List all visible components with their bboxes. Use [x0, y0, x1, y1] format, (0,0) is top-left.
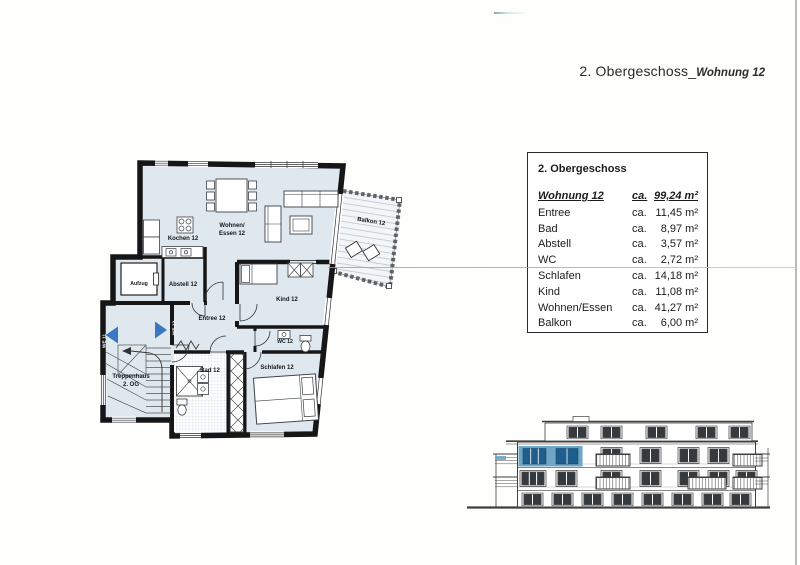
- row-label: Balkon: [538, 316, 632, 332]
- elevation-highlight: [519, 446, 583, 467]
- row-amount: 14,18 m²: [647, 269, 698, 285]
- room-label-bad: Bad 12: [200, 368, 220, 374]
- row-label: Schlafen: [538, 269, 632, 285]
- row-label: Kind: [538, 285, 632, 301]
- row-label: Abstell: [538, 237, 632, 253]
- area-table-title: 2. Obergeschoss: [538, 163, 698, 175]
- room-label-treppenhaus-1: Treppenhaus: [112, 374, 150, 380]
- elevation-drawing: [467, 417, 770, 508]
- room-label-wohnen-1: Wohnen/: [219, 223, 245, 229]
- row-amount: 8,97 m²: [647, 222, 698, 238]
- installation-shaft: [230, 354, 244, 432]
- row-label: Wohnen/Essen: [538, 301, 632, 317]
- room-label-wohnen-2: Essen 12: [219, 231, 246, 237]
- row-amount: 3,57 m²: [647, 237, 698, 253]
- area-table: 2. Obergeschoss Wohnung 12 ca.99,24 m² E…: [527, 152, 708, 333]
- room-label-abstell: Abstell 12: [169, 282, 198, 288]
- room-label-entree: Entree 12: [198, 316, 226, 322]
- room-label-aufzug: Aufzug: [130, 281, 148, 287]
- area-table-row: Entree ca.11,45 m²: [538, 206, 698, 222]
- page: 2. Obergeschoss_Wohnung 12 2. Obergescho…: [0, 0, 800, 565]
- unit-label-we12: WE 12: [172, 320, 178, 335]
- room-label-schlafen: Schlafen 12: [260, 365, 294, 371]
- floor-plan: Balkon 12: [100, 160, 402, 439]
- total-label: Wohnung 12: [538, 190, 604, 202]
- row-amount: 11,08 m²: [647, 285, 698, 301]
- row-label: Bad: [538, 222, 632, 238]
- elevator: [121, 263, 159, 295]
- row-label: Entree: [538, 206, 632, 222]
- room-label-treppenhaus-2: 2. OG: [123, 382, 139, 388]
- area-table-row: Kind ca.11,08 m²: [538, 285, 698, 301]
- area-table-row: Bad ca.8,97 m²: [538, 222, 698, 238]
- area-table-row: Balkon ca.6,00 m²: [538, 316, 698, 332]
- room-label-kind: Kind 12: [276, 297, 298, 303]
- room-label-wc: WC 12: [277, 339, 293, 345]
- total-amount: 99,24 m²: [647, 189, 698, 205]
- row-amount: 11,45 m²: [647, 206, 698, 222]
- area-table-row: Wohnen/Essen ca.41,27 m²: [538, 301, 698, 317]
- unit-label-we11: WE 11: [102, 334, 108, 348]
- scan-artifact-line: [328, 267, 796, 268]
- row-amount: 41,27 m²: [647, 301, 698, 317]
- area-table-row: Abstell ca.3,57 m²: [538, 237, 698, 253]
- area-table-row: Schlafen ca.14,18 m²: [538, 269, 698, 285]
- area-table-total-row: Wohnung 12 ca.99,24 m²: [538, 189, 698, 205]
- total-ca: ca.: [632, 189, 647, 205]
- room-label-kochen: Kochen 12: [168, 236, 199, 242]
- row-amount: 6,00 m²: [647, 316, 698, 332]
